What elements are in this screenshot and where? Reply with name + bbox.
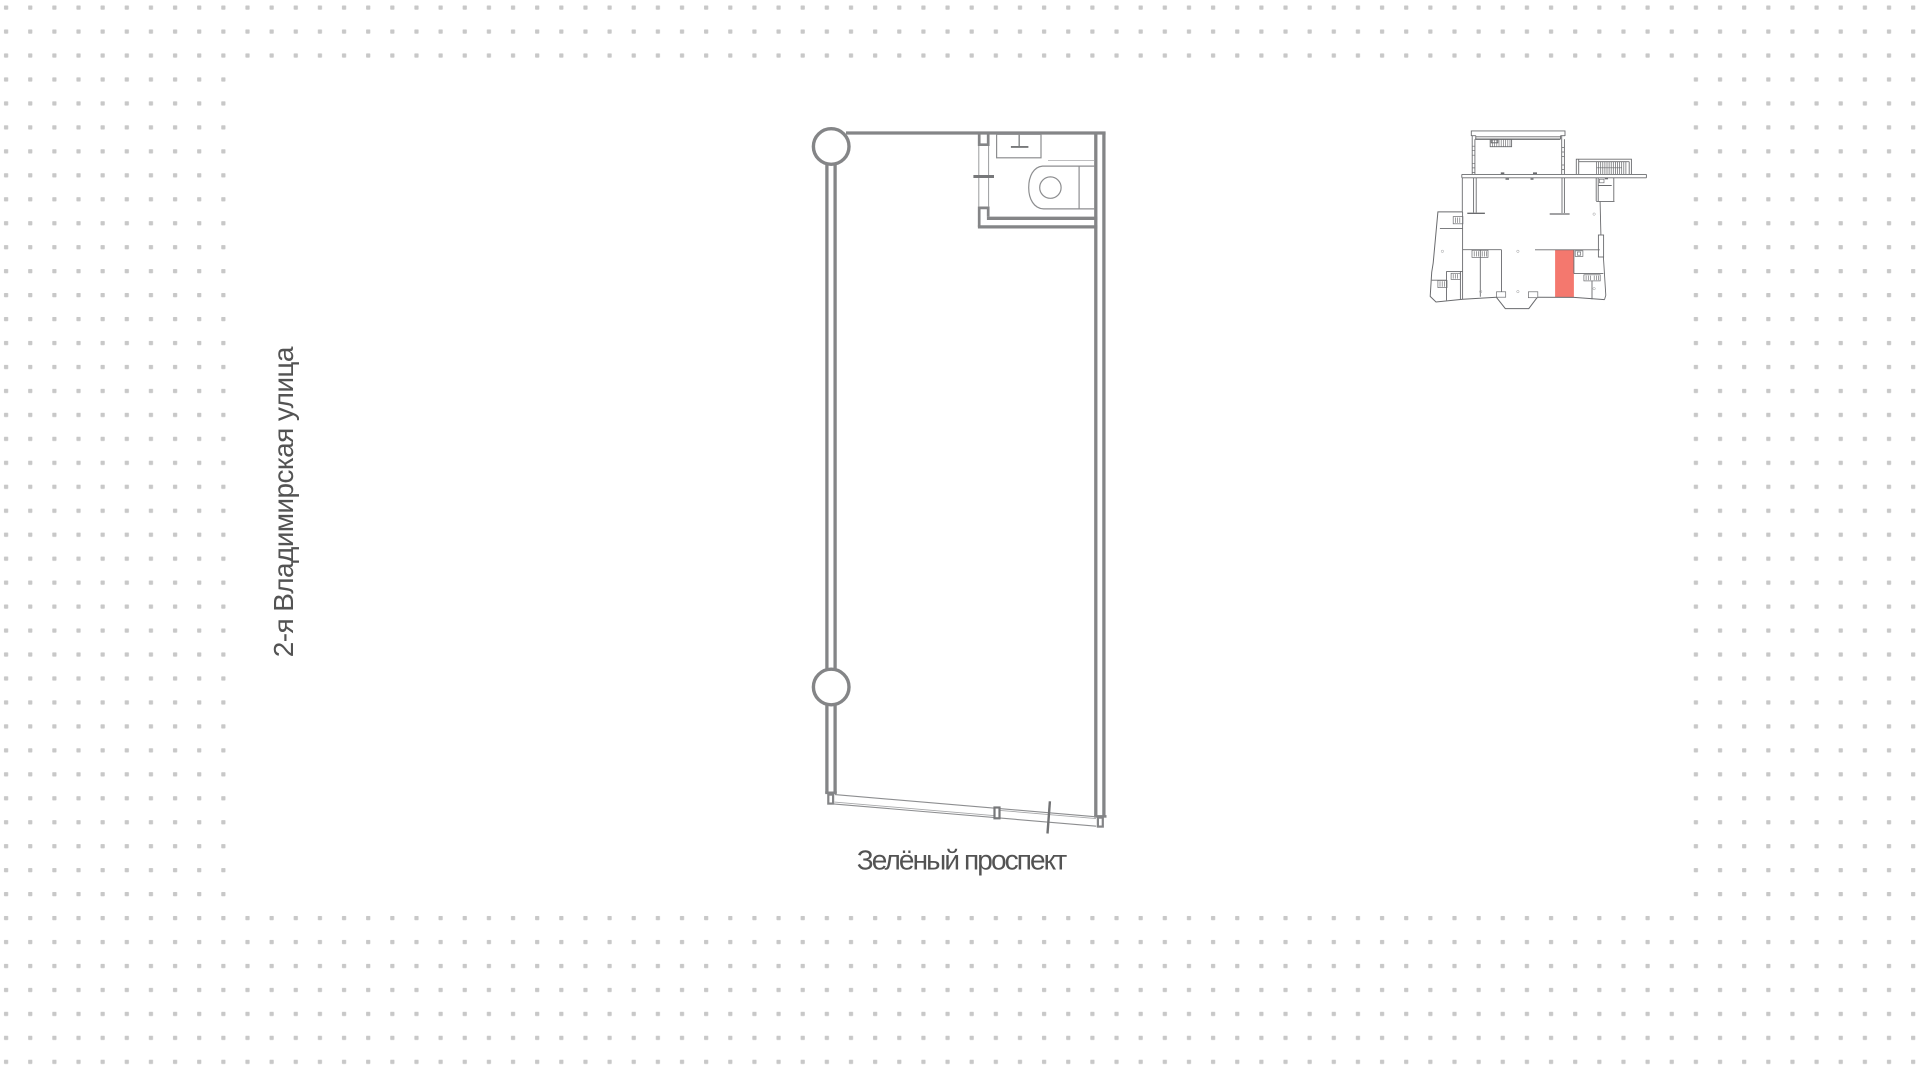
svg-text:2-я Владимирская улица: 2-я Владимирская улица [268,346,299,657]
svg-text:Зелёный проспект: Зелёный проспект [857,845,1068,876]
